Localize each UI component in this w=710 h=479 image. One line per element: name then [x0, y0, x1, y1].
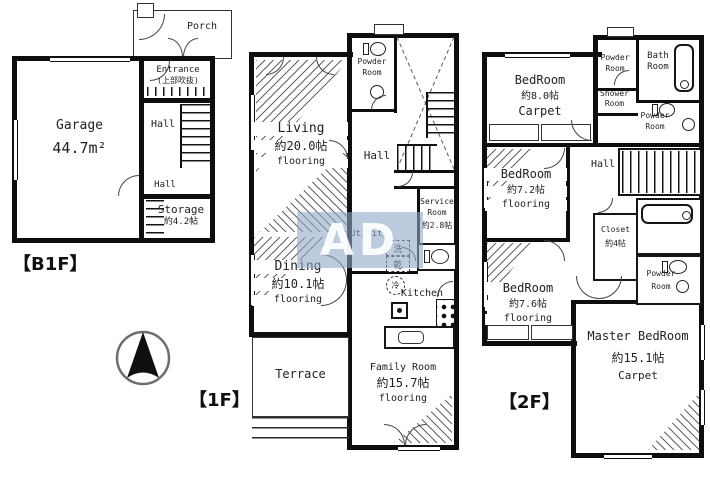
stairs-icon — [180, 104, 210, 168]
closet-box — [487, 325, 529, 340]
wall — [454, 33, 459, 450]
sink-icon — [676, 280, 689, 293]
bedroom-area-label: 約7.6帖 — [485, 300, 571, 311]
powder-room-label: Powder — [638, 270, 684, 278]
powder-room-label: Powder — [350, 58, 394, 66]
closet-area-label: 約4帖 — [594, 240, 637, 248]
bedroom-label: BedRoom — [485, 282, 571, 295]
entrance-label: Entrance — [146, 66, 210, 75]
wall — [482, 143, 704, 147]
family-room-label: Family Room — [352, 363, 454, 374]
wall — [482, 341, 577, 346]
family-room-area-label: 約15.7帖 — [352, 377, 454, 390]
window-marker — [13, 120, 18, 180]
entrance-note-label: (上部吹抜) — [146, 77, 210, 85]
entrance-step-icon — [147, 87, 209, 96]
garage-label: Garage — [22, 119, 137, 133]
kitchen-sink-icon — [398, 331, 424, 344]
watermark: AD — [297, 212, 423, 268]
living-label: Living — [254, 122, 348, 136]
wall — [482, 238, 570, 242]
window-marker — [50, 57, 130, 62]
wall — [139, 61, 144, 238]
toilet-icon — [363, 42, 387, 56]
storage-label: Storage — [150, 204, 212, 216]
hall-label: Hall — [145, 181, 185, 190]
f2-floor-label: 【2F】 — [499, 388, 560, 414]
porch-label: Porch — [178, 22, 226, 33]
powder-room-label: Room — [350, 69, 394, 77]
window-marker — [700, 390, 705, 425]
closet-box — [489, 124, 539, 141]
window-marker — [398, 446, 440, 451]
wall — [571, 300, 643, 304]
stairs-icon — [397, 144, 437, 170]
master-bedroom-label: Master BedRoom — [577, 330, 699, 343]
terrace-label: Terrace — [252, 368, 349, 381]
hall-label: Hall — [358, 150, 396, 162]
wall — [571, 300, 576, 458]
wall — [144, 194, 210, 199]
door-arc-icon — [437, 281, 453, 297]
garage-area-label: 44.7m² — [22, 141, 137, 157]
north-arrow-icon — [112, 326, 174, 390]
bedroom-floor-label: flooring — [485, 200, 567, 211]
storage-area-label: 約4.2帖 — [150, 218, 212, 227]
bedroom-area-label: 約8.0帖 — [487, 92, 593, 103]
door-arc-icon — [544, 240, 565, 261]
powder-room-label: Powder — [634, 112, 676, 120]
terrace-steps — [252, 417, 349, 445]
bedroom-label: BedRoom — [485, 168, 567, 181]
toilet-icon — [424, 249, 450, 264]
door-arc-icon — [398, 172, 413, 187]
bedroom-floor-label: Carpet — [487, 105, 593, 118]
door-arc-icon — [405, 424, 426, 445]
shower-room-label: Room — [592, 100, 637, 108]
powder-room-label: Room — [594, 65, 636, 73]
bedroom-label: BedRoom — [487, 74, 593, 87]
stairs-icon — [622, 151, 700, 193]
family-room-floor-label: flooring — [352, 394, 454, 405]
window-marker — [505, 53, 570, 58]
floor-hatch — [648, 392, 700, 450]
closet-box — [531, 325, 573, 340]
b1f-floor-label: 【B1F】 — [13, 250, 88, 276]
bedroom-floor-label: flooring — [485, 314, 571, 325]
f1-floor-label: 【1F】 — [189, 386, 250, 412]
door-arc-icon — [576, 276, 599, 299]
shower-room-label: Shower — [592, 90, 637, 98]
door-arc-icon — [599, 276, 622, 299]
stairs-icon — [426, 92, 454, 138]
service-room-label: Service — [420, 198, 454, 206]
roof-box — [374, 24, 404, 35]
bathtub-icon — [641, 204, 693, 224]
door-arc-icon — [544, 148, 565, 169]
service-room-label: Room — [420, 209, 454, 217]
wall — [144, 98, 210, 103]
service-room-area-label: 約2.8帖 — [418, 222, 456, 230]
bath-room-label: Room — [639, 63, 677, 72]
wall — [249, 52, 353, 57]
door-arc-icon — [384, 424, 405, 445]
bathtub-icon — [674, 44, 694, 92]
closet-label: Closet — [594, 226, 637, 234]
powder-room-label: Room — [634, 123, 676, 131]
bedroom-area-label: 約7.2帖 — [485, 186, 567, 197]
floorplan-canvas: Porch Garage 44.7m² Entrance (上部吹抜) Hall… — [0, 0, 710, 479]
window-marker — [700, 325, 705, 360]
master-bedroom-area-label: 約15.1帖 — [577, 352, 699, 365]
hall-label: Hall — [143, 120, 183, 131]
powder-room-label: Powder — [594, 54, 636, 62]
sink-icon — [682, 118, 695, 131]
wall — [593, 113, 638, 116]
door-arc-icon — [598, 198, 613, 213]
master-bedroom-floor-label: Carpet — [577, 370, 699, 382]
bath-room-label: Bath — [639, 52, 677, 61]
stove-icon — [391, 302, 408, 319]
window-marker — [604, 454, 652, 459]
roof-box — [607, 27, 634, 37]
wall — [394, 186, 455, 189]
burner-icon — [436, 299, 455, 327]
